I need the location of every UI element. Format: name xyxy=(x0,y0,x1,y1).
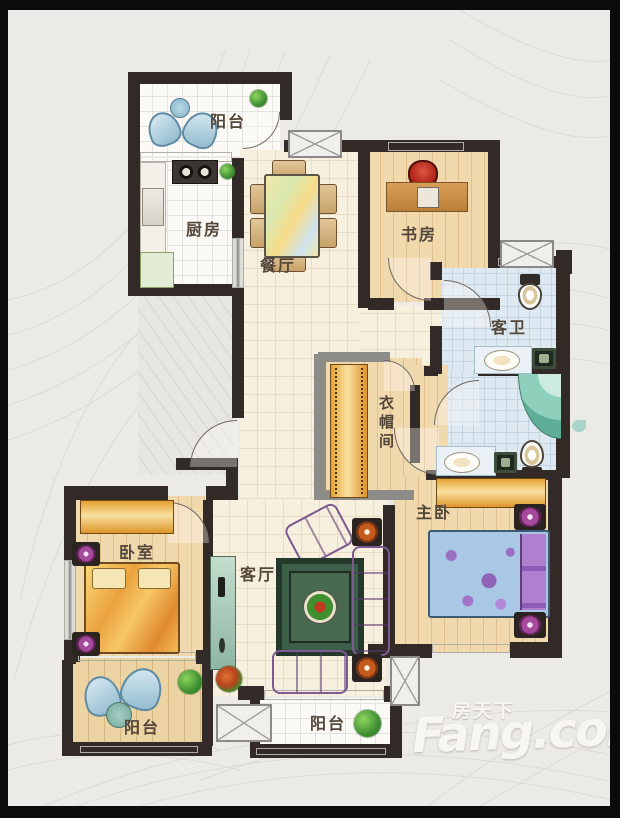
sofa xyxy=(272,650,348,694)
plant xyxy=(354,710,381,737)
toilet xyxy=(516,274,544,310)
wall-segment xyxy=(232,296,244,418)
wall-segment xyxy=(202,658,213,746)
wall-segment xyxy=(64,486,168,500)
stove xyxy=(172,160,218,184)
plant xyxy=(250,90,267,107)
duct-shaft xyxy=(500,240,554,268)
duct-shaft xyxy=(216,704,272,742)
watermark-brand-en: Fang.com xyxy=(411,700,620,764)
wall-segment xyxy=(280,72,292,120)
image-frame-top xyxy=(0,0,620,10)
sofa xyxy=(352,546,390,656)
wall-segment xyxy=(424,366,438,376)
wall-segment xyxy=(548,470,562,656)
wall-segment xyxy=(358,150,370,308)
wall-segment xyxy=(238,686,264,700)
image-frame-left xyxy=(0,0,8,818)
dining-chair xyxy=(318,218,337,248)
tv-stand xyxy=(210,556,236,670)
bedroom-wardrobe xyxy=(80,500,174,534)
kitchen-door-opening xyxy=(232,238,244,288)
room-label-closet: 衣帽间 xyxy=(379,394,396,451)
duct-shaft xyxy=(288,130,342,158)
wall-segment xyxy=(314,354,326,500)
wall-segment xyxy=(368,298,394,310)
speaker-decor xyxy=(352,654,382,682)
image-frame-right xyxy=(610,0,620,818)
room-label-master-bedroom: 主卧 xyxy=(416,499,452,523)
plant xyxy=(220,164,235,179)
fang-watermark: 房天下 Fang.com xyxy=(412,690,617,780)
wall-segment xyxy=(390,700,402,748)
sink xyxy=(484,350,520,371)
wall-segment xyxy=(430,262,442,280)
wall-segment xyxy=(128,72,140,294)
dining-chair xyxy=(318,184,337,214)
window xyxy=(432,644,510,653)
window xyxy=(256,748,386,755)
bed-pillows xyxy=(520,534,546,610)
desk xyxy=(386,182,468,212)
nightstand-decor xyxy=(72,542,100,566)
nightstand-decor xyxy=(514,612,546,638)
wall-segment xyxy=(318,352,390,362)
room-label-balcony-top: 阳台 xyxy=(210,108,246,132)
closet-wardrobe xyxy=(330,364,368,498)
paint-splash xyxy=(572,420,586,432)
sink xyxy=(444,452,480,473)
dining-table xyxy=(264,174,320,258)
nightstand-decor xyxy=(514,504,546,530)
room-label-study: 书房 xyxy=(401,221,437,245)
room-label-dining: 餐厅 xyxy=(260,252,296,276)
fridge xyxy=(140,252,174,288)
room-label-living: 客厅 xyxy=(240,561,276,585)
balcony-table xyxy=(170,98,190,118)
plant xyxy=(216,666,242,692)
wall-segment xyxy=(488,140,500,268)
wall-segment xyxy=(510,642,562,658)
image-frame-bottom xyxy=(0,806,620,818)
room-label-balcony-bc: 阳台 xyxy=(310,710,346,734)
room-label-kitchen: 厨房 xyxy=(186,216,222,240)
bath-cabinet xyxy=(494,452,517,473)
room-label-bedroom: 卧室 xyxy=(119,539,155,563)
nightstand-decor xyxy=(72,632,100,656)
window xyxy=(80,746,198,753)
speaker-decor xyxy=(352,518,382,546)
wall-segment xyxy=(206,486,238,500)
room-label-guest-bath: 客卫 xyxy=(491,314,527,338)
rug xyxy=(276,558,364,656)
window xyxy=(64,560,76,640)
kitchen-sink xyxy=(142,188,164,226)
floorplan-image: 阳台 厨房 餐厅 书房 客卫 衣帽间 主卧 卧室 客厅 阳台 阳台 房天下 Fa… xyxy=(0,0,620,818)
window xyxy=(388,142,464,151)
room-label-balcony-bl: 阳台 xyxy=(124,714,160,738)
plant xyxy=(178,670,202,694)
toilet xyxy=(518,440,546,478)
bath-cabinet xyxy=(532,348,556,369)
wall-segment xyxy=(128,72,292,84)
